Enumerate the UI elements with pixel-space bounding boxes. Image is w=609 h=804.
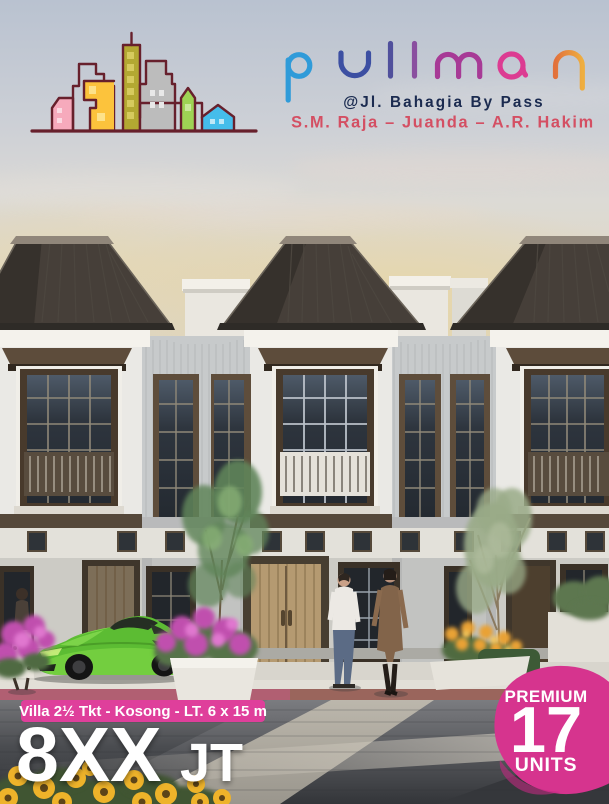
svg-text:@Jl. Bahagia By Pass: @Jl. Bahagia By Pass: [343, 94, 544, 111]
svg-text:8XX: 8XX: [16, 712, 162, 798]
svg-text:JT: JT: [180, 733, 243, 793]
svg-text:UNITS: UNITS: [515, 754, 578, 776]
svg-text:S.M. Raja – Juanda – A.R. Haki: S.M. Raja – Juanda – A.R. Hakim: [291, 114, 595, 132]
